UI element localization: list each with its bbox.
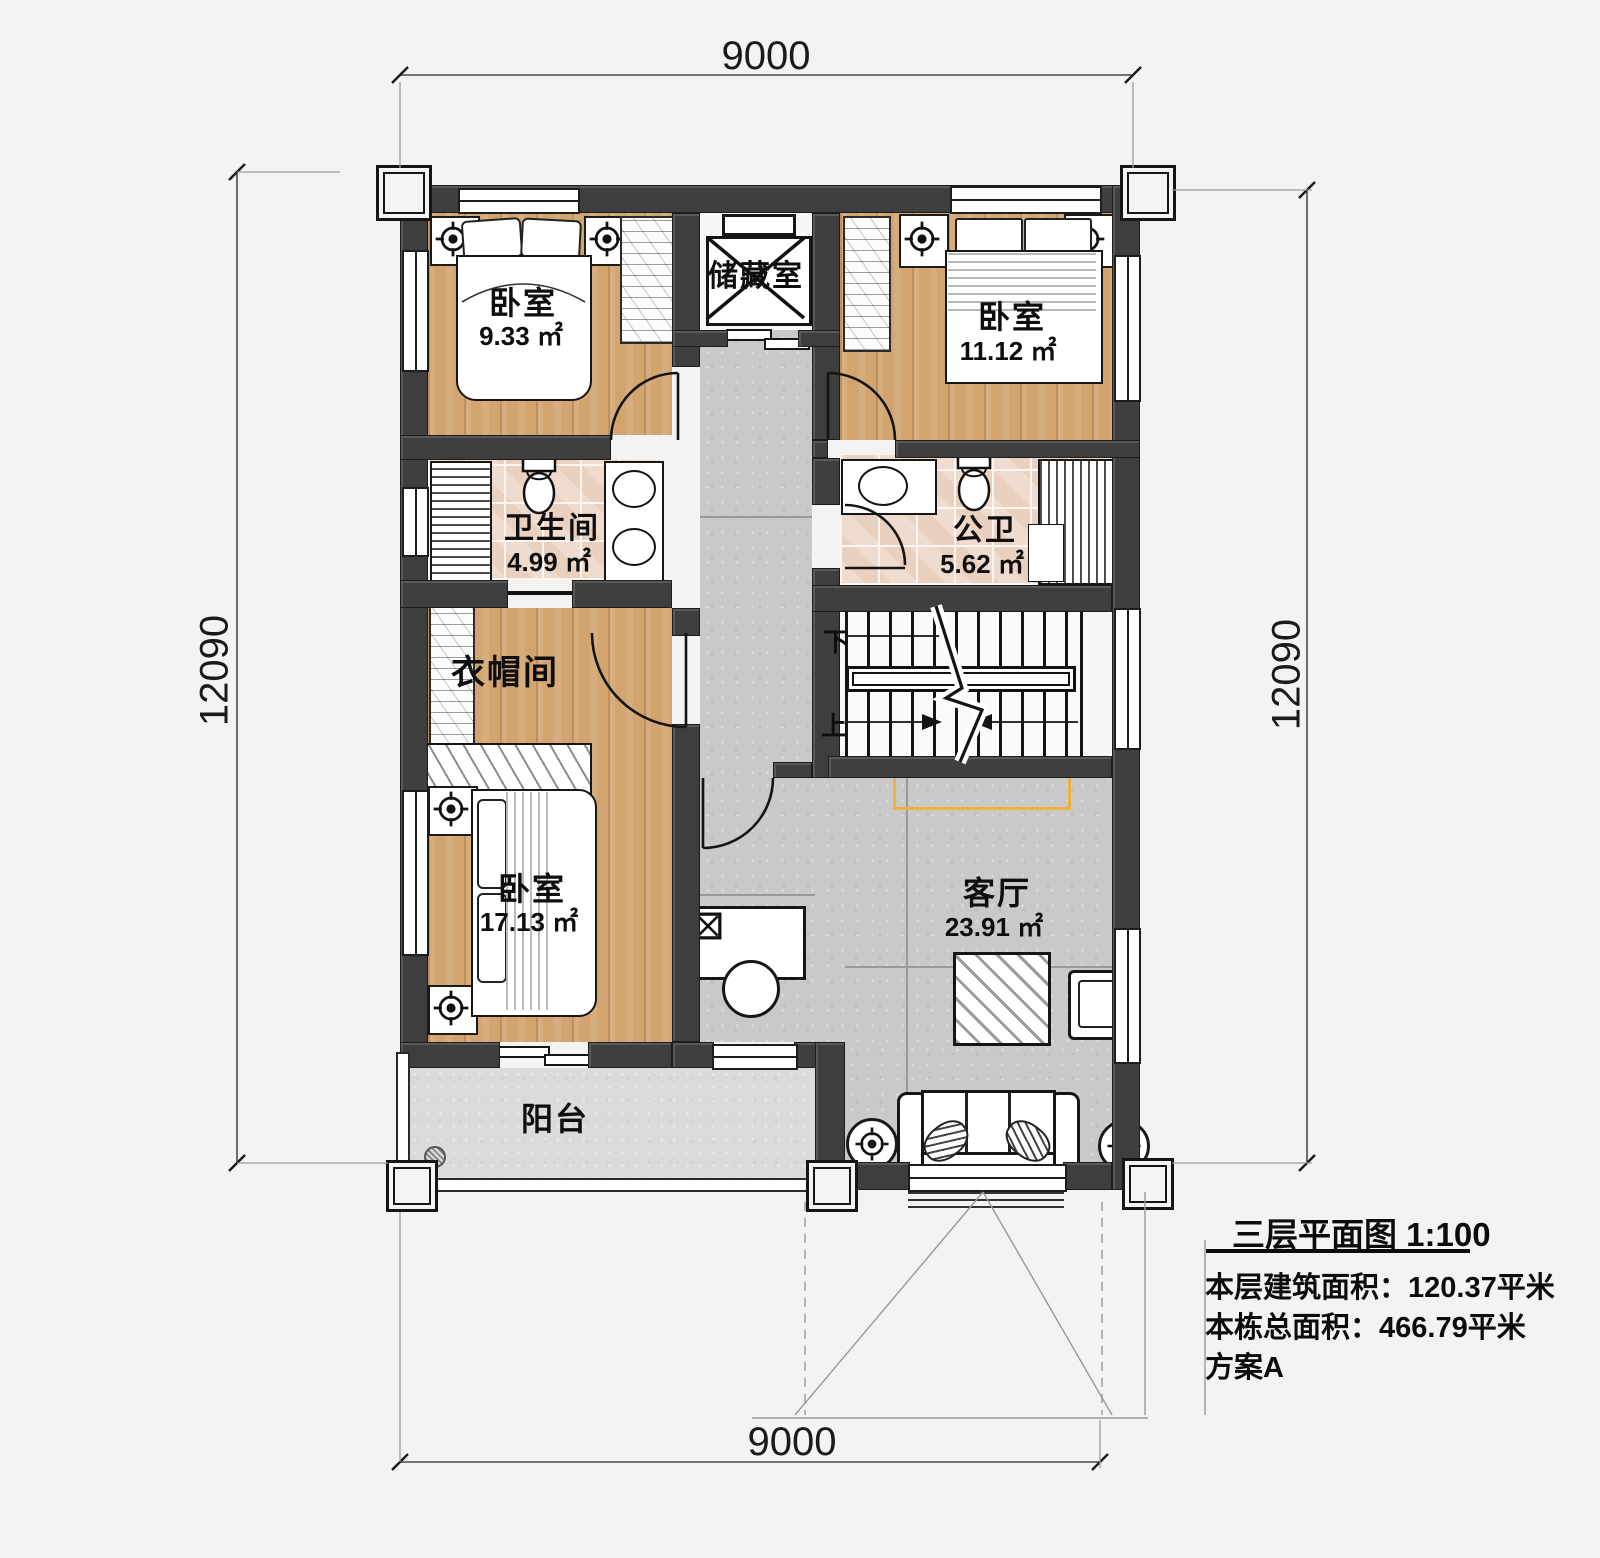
wall — [588, 1042, 672, 1068]
window — [402, 790, 429, 956]
dim-bottom: 9000 — [692, 1420, 892, 1465]
wall — [812, 585, 1112, 612]
wall — [672, 724, 700, 1042]
room-label-bath-master: 卫生间 — [452, 512, 652, 545]
room-label-living: 客厅 — [897, 876, 1097, 911]
dim-right: 12090 — [1265, 575, 1310, 775]
entrance-steps — [908, 1192, 1064, 1208]
wall — [672, 330, 728, 347]
corridor-floor — [700, 330, 812, 778]
room-area-bedroom-ne: 11.12 ㎡ — [908, 337, 1108, 366]
stairs-up-label: 上 — [814, 706, 854, 743]
floor-area-text: 本层建筑面积：120.37平米 — [1205, 1264, 1600, 1306]
toilet-icon — [517, 456, 561, 518]
window — [458, 188, 580, 214]
room-label-bedroom-sw: 卧室 — [432, 872, 632, 907]
corner-pilaster — [386, 1160, 438, 1212]
sliding-door-panel — [498, 1046, 550, 1058]
window — [712, 1044, 798, 1070]
room-area-bedroom-sw: 17.13 ㎡ — [429, 908, 629, 937]
wall — [828, 756, 1112, 778]
grout-line — [700, 894, 815, 896]
sink-icon — [858, 466, 908, 506]
wall — [1063, 1162, 1112, 1190]
spotlight-icon — [899, 214, 949, 268]
room-area-living: 23.91 ㎡ — [894, 913, 1094, 942]
corner-pilaster — [1122, 1158, 1174, 1210]
wall — [400, 435, 611, 460]
window — [1114, 928, 1141, 1064]
window — [1114, 255, 1141, 402]
wall — [672, 608, 700, 636]
coffee-table — [953, 952, 1051, 1046]
corner-pilaster — [806, 1160, 858, 1212]
stairs-landing-edge — [1080, 612, 1083, 756]
room-area-bedroom-nw: 9.33 ㎡ — [421, 322, 621, 351]
room-label-bath-public: 公卫 — [885, 514, 1085, 547]
title-underline — [1206, 1249, 1470, 1253]
stairs-down-label: 下 — [816, 622, 856, 659]
pillow — [1024, 218, 1092, 254]
room-area-bath-master: 4.99 ㎡ — [449, 548, 649, 577]
wall — [812, 458, 840, 505]
window — [908, 1164, 1067, 1192]
dim-left: 12090 — [193, 571, 238, 771]
room-label-bedroom-ne: 卧室 — [912, 300, 1112, 335]
room-label-bedroom-nw: 卧室 — [423, 286, 623, 321]
room-label-balcony: 阳台 — [455, 1102, 655, 1137]
floor-plan-canvas: 卧室 9.33 ㎡ 储藏室 卧室 11.12 ㎡ 卫生间 4.99 ㎡ 公卫 5… — [0, 0, 1600, 1558]
room-label-cloakroom: 衣帽间 — [405, 655, 605, 692]
wall — [812, 213, 840, 440]
wall — [400, 580, 508, 608]
wall — [812, 440, 828, 458]
balcony-parapet — [396, 1178, 824, 1192]
pillow — [955, 218, 1023, 254]
corner-pilaster — [1120, 165, 1176, 221]
wall — [572, 580, 672, 608]
sink-icon — [612, 470, 656, 508]
wall — [895, 440, 1140, 458]
window — [1114, 608, 1141, 750]
grout-line — [700, 516, 812, 518]
chair — [722, 960, 780, 1018]
stairs-handrail — [846, 666, 1076, 692]
window — [950, 186, 1102, 214]
window — [402, 487, 429, 557]
scheme-text: 方案A — [1205, 1344, 1600, 1386]
wall — [798, 330, 840, 347]
room-label-storage: 储藏室 — [656, 260, 856, 293]
sliding-door-panel — [508, 591, 572, 595]
storage-shelf — [722, 214, 796, 236]
room-area-bath-public: 5.62 ㎡ — [882, 550, 1082, 579]
corner-pilaster — [376, 165, 432, 221]
wall — [773, 762, 812, 778]
wall — [672, 1042, 714, 1068]
toilet-icon — [952, 453, 996, 515]
wall — [400, 1042, 500, 1068]
total-area-text: 本栋总面积：466.79平米 — [1205, 1304, 1600, 1346]
dim-top: 9000 — [666, 34, 866, 79]
